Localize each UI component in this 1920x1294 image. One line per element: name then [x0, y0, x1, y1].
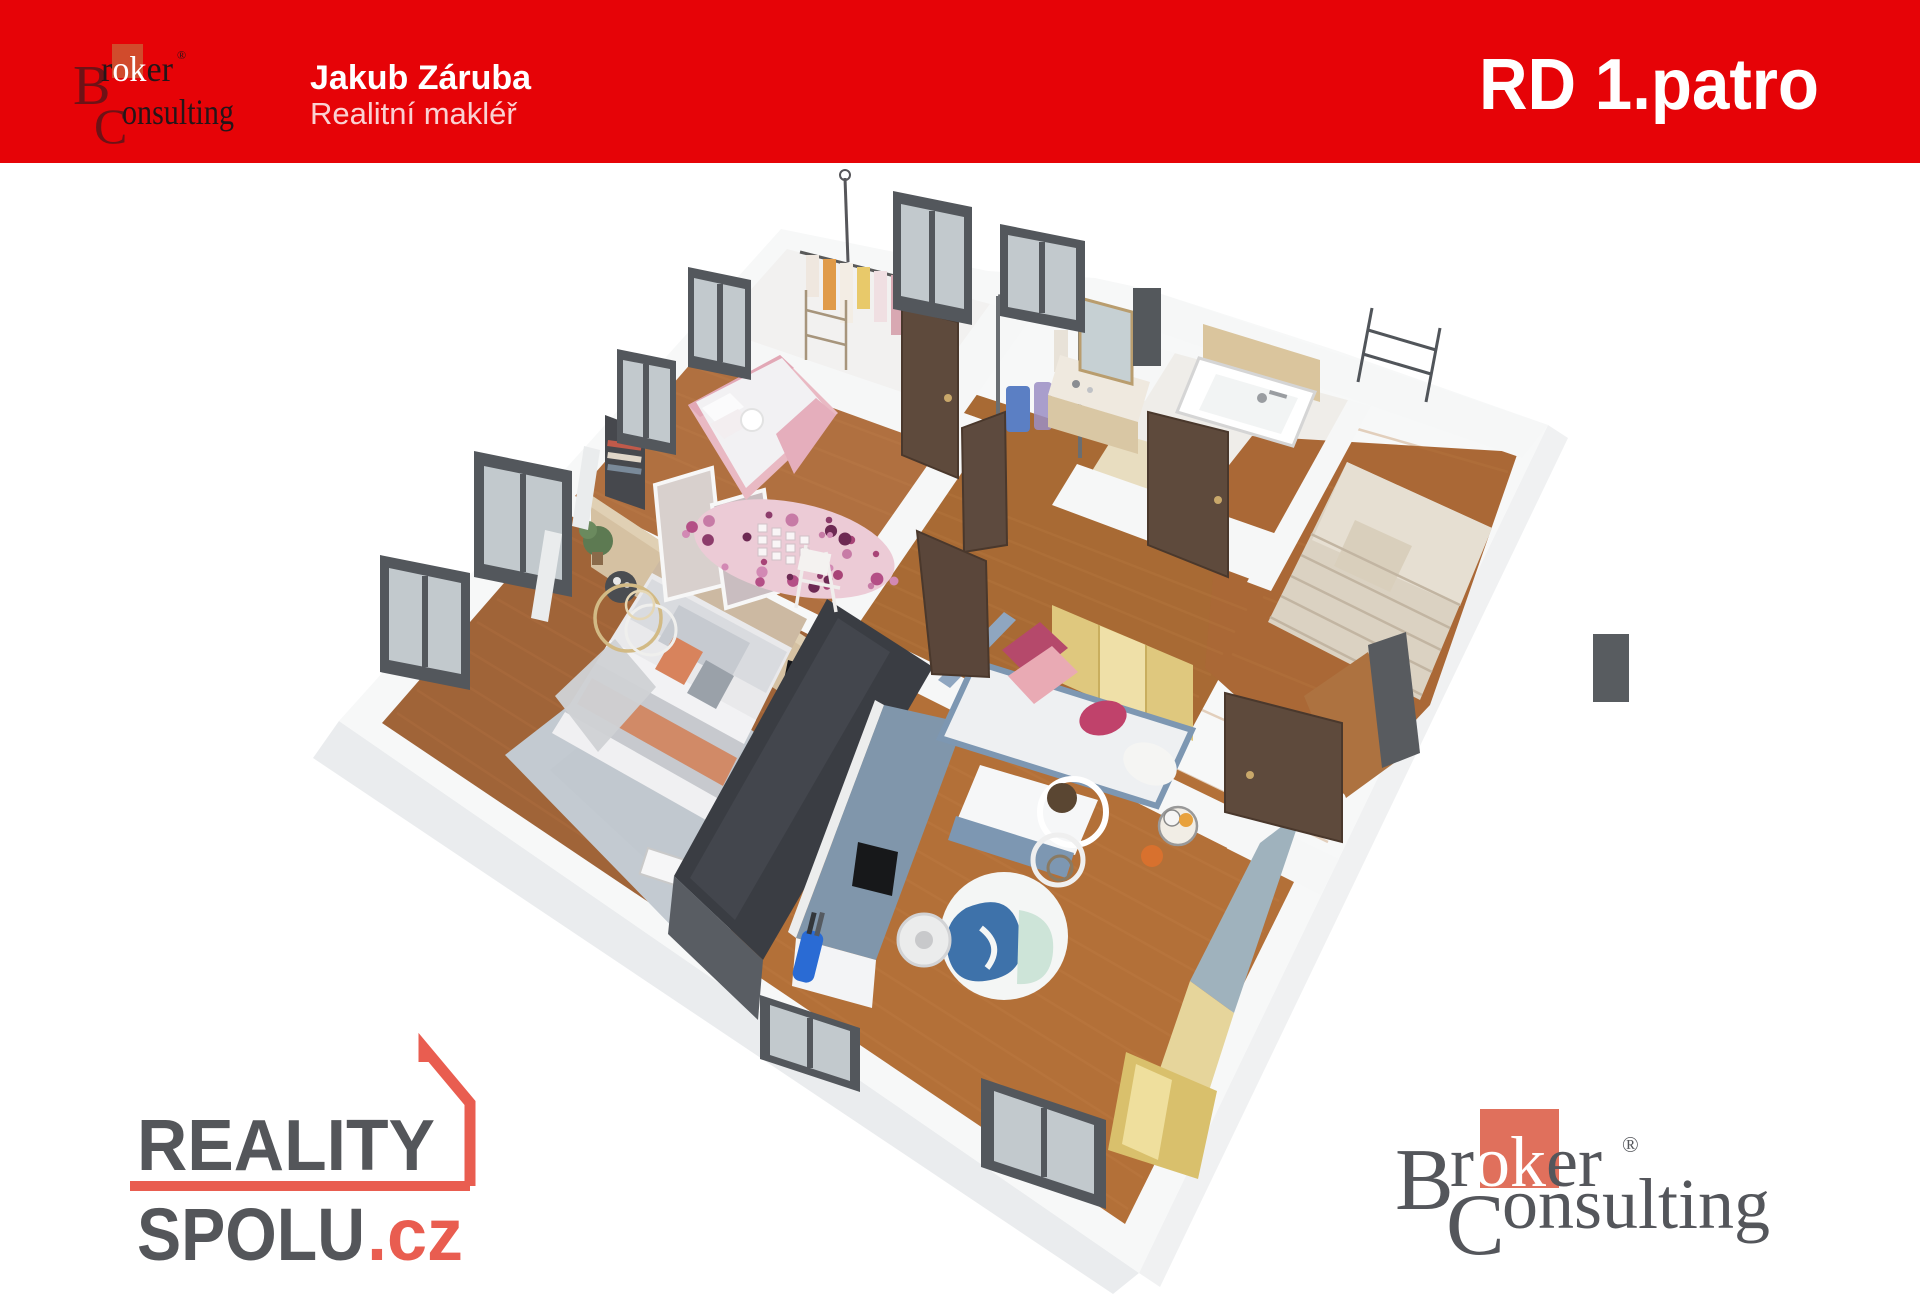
svg-text:Realitní makléř: Realitní makléř: [310, 96, 517, 131]
svg-text:Jakub Záruba: Jakub Záruba: [310, 59, 532, 97]
svg-text:onsulting: onsulting: [122, 92, 234, 132]
svg-text:®: ®: [1622, 1132, 1639, 1157]
svg-text:REALITY: REALITY: [137, 1106, 435, 1186]
svg-text:B: B: [1395, 1132, 1454, 1229]
svg-text:SPOLU: SPOLU: [137, 1193, 365, 1276]
svg-text:onsulting: onsulting: [1502, 1164, 1770, 1244]
svg-text:.cz: .cz: [367, 1193, 463, 1276]
svg-text:roker: roker: [101, 49, 173, 89]
svg-text:®: ®: [177, 48, 186, 62]
svg-text:C: C: [1446, 1177, 1505, 1274]
svg-text:RD 1.patro: RD 1.patro: [1479, 45, 1819, 125]
